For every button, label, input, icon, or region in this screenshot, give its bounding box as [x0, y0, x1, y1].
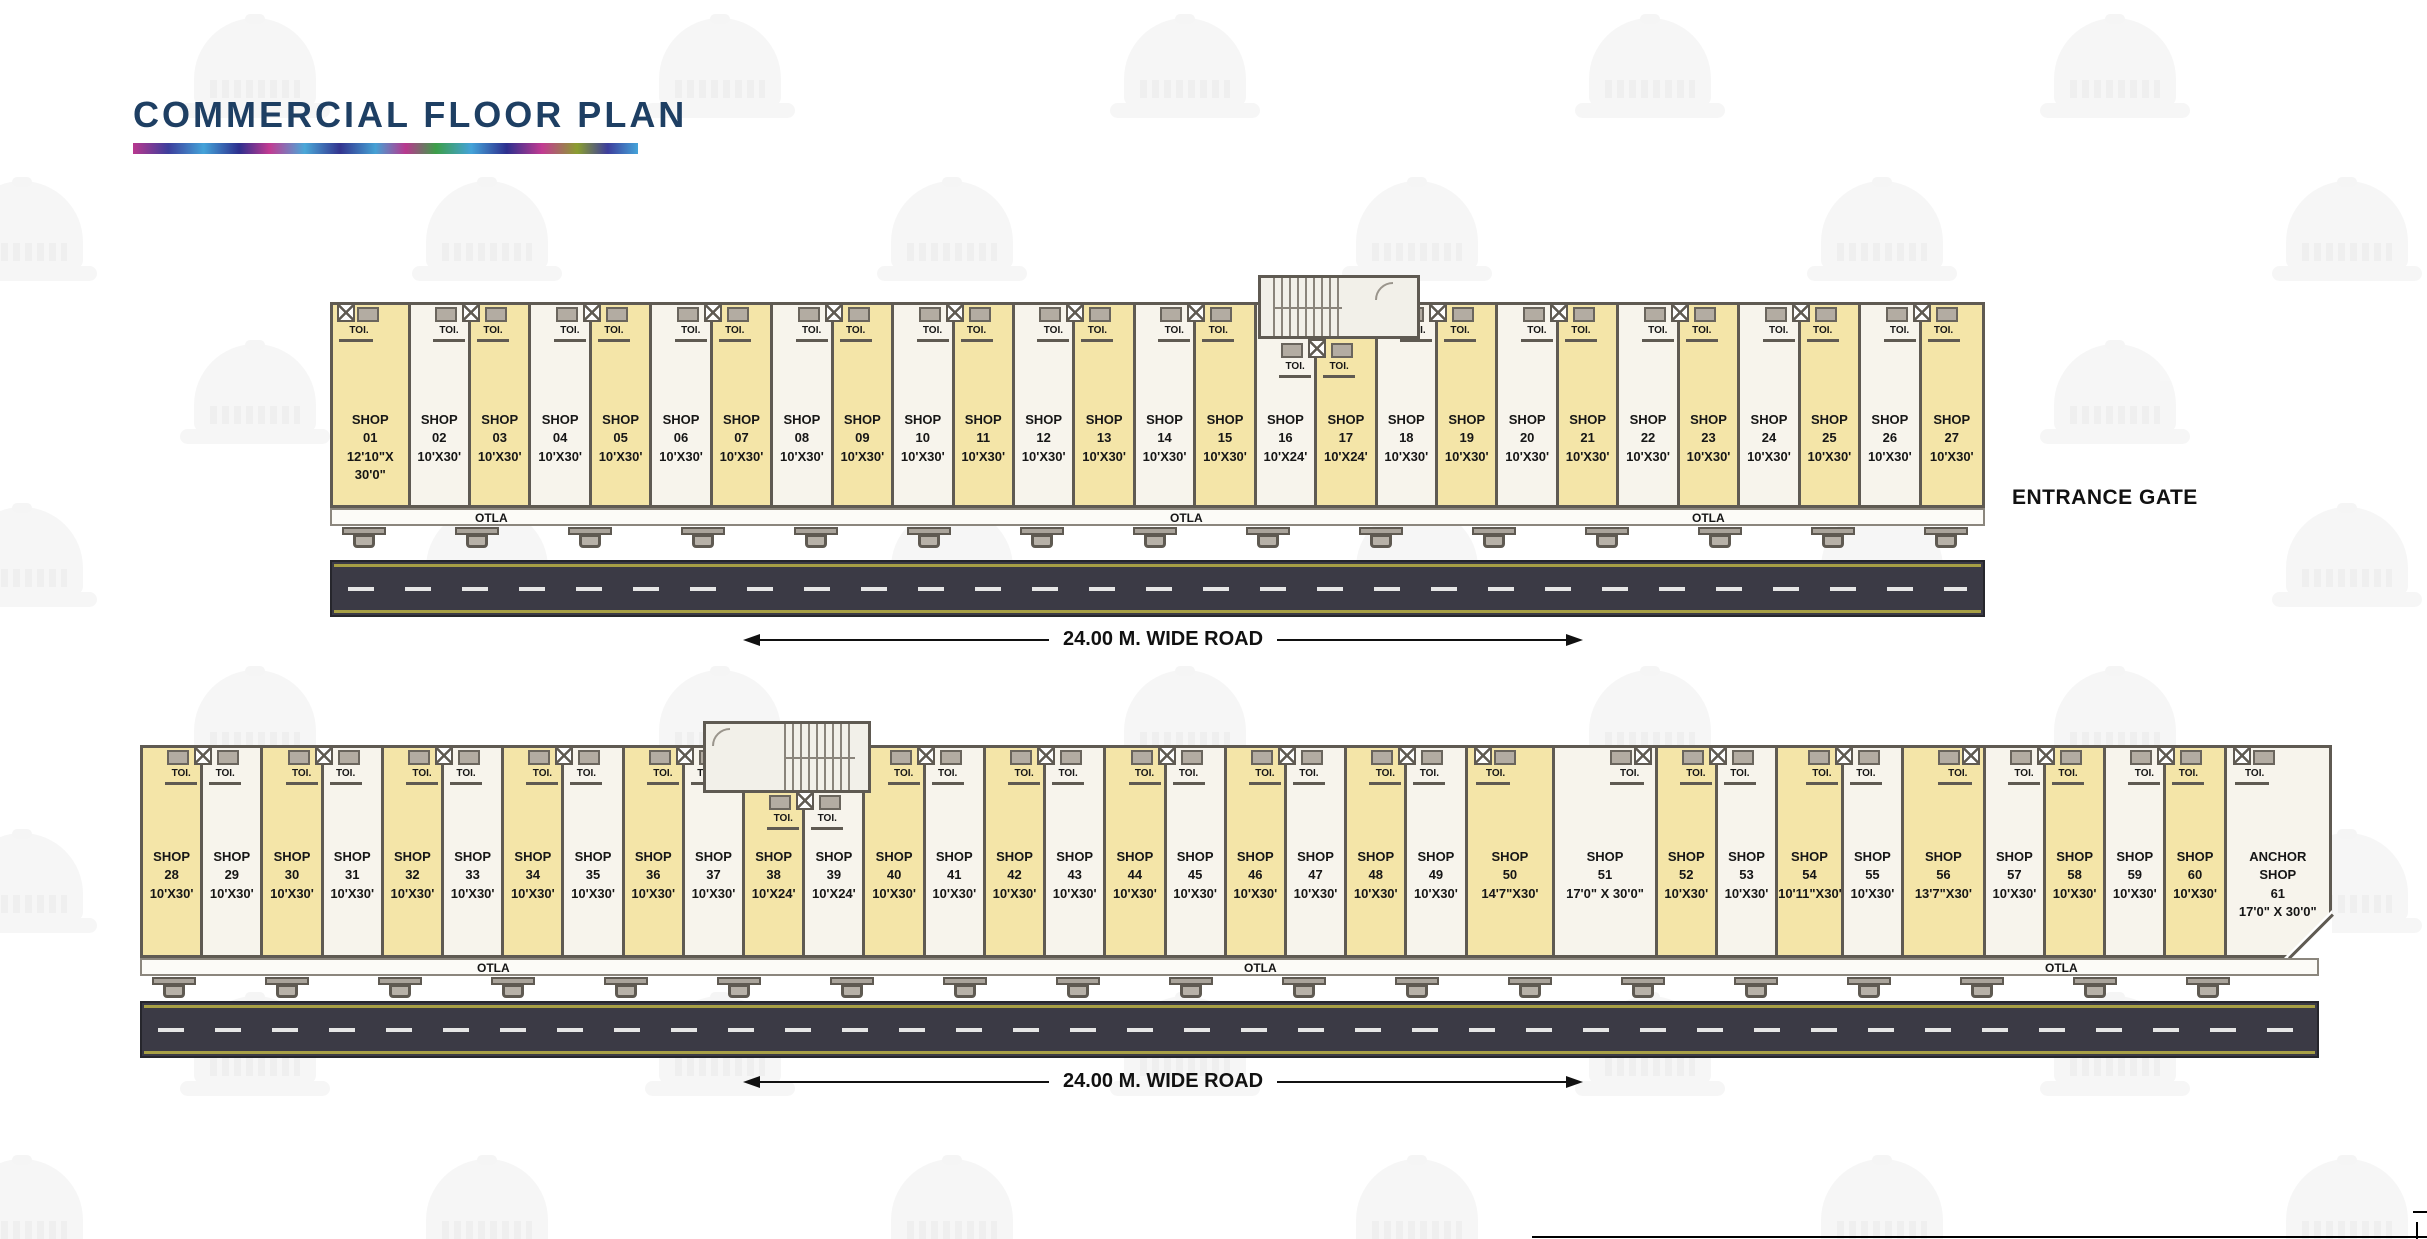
- toilet-wall-stub: [1763, 339, 1795, 342]
- toilet-shaft-icon: [1429, 303, 1447, 322]
- toilet-block: [1251, 750, 1273, 765]
- page-title-block: COMMERCIAL FLOOR PLAN: [133, 94, 687, 154]
- shop-label: SHOP4910'X30': [1407, 848, 1464, 903]
- watermark-helmet: [2272, 503, 2422, 615]
- entry-step: [1246, 527, 1290, 551]
- shop-label: SHOP5710'X30': [1986, 848, 2043, 903]
- helmet-knob: [12, 177, 32, 187]
- watermark-helmet: [877, 1155, 1027, 1239]
- toilet-shaft-icon: [917, 746, 935, 765]
- shop-label-line: 10'X30': [625, 885, 682, 903]
- toilet-wall-stub: [932, 782, 964, 785]
- toilet-single: TOI.: [335, 305, 383, 345]
- entry-step: [1133, 527, 1177, 551]
- watermark-helmet: [1342, 1155, 1492, 1239]
- watermark-helmet: [412, 1155, 562, 1239]
- helmet-knob: [942, 1155, 962, 1165]
- scan-artifact: [2413, 1211, 2427, 1213]
- toilet-label: TOI.: [566, 768, 606, 779]
- toilet-block: [2130, 750, 2152, 765]
- road-width-text: 24.00 M. WIDE ROAD: [1049, 628, 1277, 651]
- shop-label: SHOP0610'X30': [652, 411, 709, 466]
- shop-label-line: 08: [773, 429, 830, 447]
- road-width-label-top: 24.00 M. WIDE ROAD: [743, 628, 1583, 651]
- toilet-wall-stub: [2008, 782, 2040, 785]
- toilet-block: [1938, 750, 1960, 765]
- shop-label: SHOP1910'X30': [1438, 411, 1495, 466]
- shop-label-line: SHOP: [926, 848, 983, 866]
- shop-label: SHOP0510'X30': [592, 411, 649, 466]
- dimension-arrowhead-right: [1566, 1076, 1583, 1088]
- toilet-wall-stub: [840, 339, 872, 342]
- shop-label-line: SHOP: [1136, 411, 1193, 429]
- shop-label-line: 27: [1922, 429, 1982, 447]
- toilet-label: TOI.: [402, 768, 442, 779]
- shop-label-line: SHOP: [1468, 848, 1553, 866]
- shop-label: SHOP5014'7"X30': [1468, 848, 1553, 903]
- entry-step: [1585, 527, 1629, 551]
- shop-label-line: SHOP: [384, 848, 441, 866]
- otla-label: OTLA: [1244, 961, 1277, 975]
- entry-step: [2073, 977, 2117, 1001]
- shop-label-line: 10'X30': [1136, 448, 1193, 466]
- toilet-block: [167, 750, 189, 765]
- shop-label-line: 13'7"X30': [1904, 885, 1983, 903]
- shop-label-line: 50: [1468, 866, 1553, 884]
- shop-label-line: SHOP: [1986, 848, 2043, 866]
- helmet-skyline: [210, 406, 300, 424]
- toilet-block: [649, 750, 671, 765]
- shop-label-line: 10'X24': [805, 885, 862, 903]
- helmet-knob: [245, 340, 265, 350]
- toilet-block: [1523, 307, 1545, 322]
- shop-label-line: 10'X30': [1167, 885, 1224, 903]
- helmet-knob: [2337, 503, 2357, 513]
- watermark-helmet: [0, 503, 97, 615]
- shop-label-line: 10'X30': [1015, 448, 1072, 466]
- stair-landing-line: [1273, 307, 1342, 309]
- toilet-label: TOI.: [671, 325, 711, 336]
- toilet-wall-stub: [2052, 782, 2084, 785]
- shop-label-line: SHOP: [1801, 411, 1858, 429]
- entry-step: [943, 977, 987, 1001]
- door-swing-arc: [1375, 282, 1411, 318]
- chamfer-corner-cover: [2284, 910, 2332, 958]
- shop-label-line: 10'X30': [926, 885, 983, 903]
- shop-label-line: 40: [865, 866, 922, 884]
- entry-step-foot: [841, 984, 863, 998]
- toilet-block: [969, 307, 991, 322]
- helmet-knob: [477, 1155, 497, 1165]
- watermark-helmet: [2040, 14, 2190, 126]
- toilet-block: [1131, 750, 1153, 765]
- helmet-skyline: [1605, 1058, 1695, 1076]
- shop-label-line: 26: [1861, 429, 1918, 447]
- toilet-wall-stub: [1279, 375, 1311, 378]
- toilet-wall-stub: [767, 827, 799, 830]
- toilet-pair: TOI.TOI.: [1243, 748, 1331, 788]
- shop-label-line: 21: [1559, 429, 1616, 447]
- toilet-pair: TOI.TOI.: [2002, 748, 2090, 788]
- shop-label-line: 10'X30': [1658, 885, 1715, 903]
- entry-step: [265, 977, 309, 1001]
- helmet-brim: [1807, 266, 1957, 281]
- watermark-helmet: [0, 1155, 97, 1239]
- shop-label-line: 41: [926, 866, 983, 884]
- shop-label-line: SHOP: [2046, 848, 2103, 866]
- helmet-knob: [2105, 14, 2125, 24]
- toilet-wall-stub: [1476, 782, 1510, 785]
- shop-label: SHOP2010'X30': [1498, 411, 1555, 466]
- shop-label-line: 10'X30': [531, 448, 588, 466]
- watermark-helmet: [877, 177, 1027, 289]
- toilet-block: [1808, 750, 1830, 765]
- toilet-shaft-icon: [1037, 746, 1055, 765]
- shop-label-line: 44: [1106, 866, 1163, 884]
- staircase: [1258, 275, 1420, 339]
- toilet-label: TOI.: [2235, 768, 2275, 779]
- shop-label: SHOP5310'X30': [1718, 848, 1775, 903]
- toilet-block: [1421, 750, 1443, 765]
- helmet-skyline: [0, 243, 67, 261]
- toilet-block: [1682, 750, 1704, 765]
- shop-label-line: 10'X30': [2166, 885, 2223, 903]
- shop-label: SHOP1710'X24': [1317, 411, 1374, 466]
- toilet-shaft-icon: [1158, 746, 1176, 765]
- toilet-wall-stub: [1884, 339, 1916, 342]
- toilet-block: [1815, 307, 1837, 322]
- watermark-helmet: [2272, 177, 2422, 289]
- toilet-wall-stub: [811, 827, 843, 830]
- shop-label-line: 14'7"X30': [1468, 885, 1553, 903]
- toilet-block: [1160, 307, 1182, 322]
- shop-label-line: SHOP: [1680, 411, 1737, 429]
- shop-label: SHOP4410'X30': [1106, 848, 1163, 903]
- helmet-knob: [2337, 829, 2357, 839]
- helmet-skyline: [0, 895, 67, 913]
- toilet-label: TOI.: [473, 325, 513, 336]
- shop-label: SHOP3410'X30': [504, 848, 561, 903]
- toilet-wall-stub: [1806, 782, 1838, 785]
- helmet-brim: [2272, 592, 2422, 607]
- entry-step-foot: [615, 984, 637, 998]
- toilet-label: TOI.: [957, 325, 997, 336]
- watermark-helmet: [1807, 177, 1957, 289]
- shop-label-line: 60: [2166, 866, 2223, 884]
- toilet-block: [769, 795, 791, 810]
- toilet-shaft-icon: [704, 303, 722, 322]
- toilet-wall-stub: [286, 782, 318, 785]
- shop-label-line: 45: [1167, 866, 1224, 884]
- toilet-wall-stub: [1938, 782, 1972, 785]
- toilet-label: TOI.: [1803, 325, 1843, 336]
- road-top: [330, 560, 1985, 617]
- entry-step: [378, 977, 422, 1001]
- toilet-single: TOI.: [1606, 748, 1654, 788]
- entry-step-foot: [805, 534, 827, 548]
- toilet-wall-stub: [796, 339, 828, 342]
- toilet-block: [1494, 750, 1516, 765]
- shop-label-line: SHOP: [1922, 411, 1982, 429]
- toilet-shaft-icon: [2157, 746, 2175, 765]
- shop-label-line: 10'X30': [411, 448, 468, 466]
- shop-label-line: SHOP: [1555, 848, 1654, 866]
- shop-label-line: SHOP: [1287, 848, 1344, 866]
- helmet-skyline: [2070, 406, 2160, 424]
- toilet-block: [1281, 343, 1303, 358]
- helmet-skyline: [2070, 80, 2160, 98]
- entrance-gate-label: ENTRANCE GATE: [2012, 486, 2198, 510]
- helmet-brim: [180, 429, 330, 444]
- toilet-label: TOI.: [1245, 768, 1285, 779]
- toilet-wall-stub: [1129, 782, 1161, 785]
- helmet-brim: [0, 918, 97, 933]
- shop-label-line: 02: [411, 429, 468, 447]
- shop-label-line: 10'X30': [592, 448, 649, 466]
- toilet-pair: TOI.TOI.: [520, 748, 608, 788]
- toilet-shaft-icon: [1835, 746, 1853, 765]
- entry-step-foot: [692, 534, 714, 548]
- helmet-knob: [245, 666, 265, 676]
- toilet-wall-stub: [1202, 339, 1234, 342]
- entry-step: [342, 527, 386, 551]
- toilet-shaft-icon: [2037, 746, 2055, 765]
- entry-step-foot: [1067, 984, 1089, 998]
- toilet-wall-stub: [1158, 339, 1190, 342]
- toilet-wall-stub: [1323, 375, 1355, 378]
- toilet-wall-stub: [433, 339, 465, 342]
- shop-label: SHOP4610'X30': [1227, 848, 1284, 903]
- toilet-block: [798, 307, 820, 322]
- shop-label-line: 24: [1740, 429, 1797, 447]
- otla-label: OTLA: [475, 511, 508, 525]
- road-edge-line: [334, 610, 1981, 613]
- entry-step-foot: [466, 534, 488, 548]
- toilet-wall-stub: [1850, 782, 1882, 785]
- shop-label-line: SHOP: [1498, 411, 1555, 429]
- toilet-block: [1181, 750, 1203, 765]
- helmet-skyline: [442, 1221, 532, 1239]
- toilet-shaft-icon: [435, 746, 453, 765]
- toilet-block: [217, 750, 239, 765]
- shop-label-line: SHOP: [1075, 411, 1132, 429]
- helmet-brim: [877, 266, 1027, 281]
- shop-label-line: 10'X30': [1227, 885, 1284, 903]
- entry-step-foot: [1180, 984, 1202, 998]
- entry-step-foot: [1858, 984, 1880, 998]
- helmet-knob: [710, 14, 730, 24]
- shop-label: SHOP5810'X30': [2046, 848, 2103, 903]
- shop-label-line: 12'10"X: [333, 448, 408, 466]
- toilet-label: TOI.: [792, 325, 832, 336]
- shop-label: SHOP4310'X30': [1046, 848, 1103, 903]
- shop-label-line: SHOP: [955, 411, 1012, 429]
- toilet-label: TOI.: [2168, 768, 2208, 779]
- helmet-knob: [1407, 177, 1427, 187]
- stair-landing-line: [784, 757, 855, 759]
- toilet-block: [2060, 750, 2082, 765]
- shop-label: SHOP5210'X30': [1658, 848, 1715, 903]
- shop-label-line: 10'X24': [1317, 448, 1374, 466]
- toilet-block: [1936, 307, 1958, 322]
- toilet-label: TOI.: [1154, 325, 1194, 336]
- shop-label-line: 10'X30': [1106, 885, 1163, 903]
- shop-label-line: 53: [1718, 866, 1775, 884]
- toilet-label: TOI.: [1004, 768, 1044, 779]
- top-shops-building: SHOP0112'10"X30'0"TOI.SHOP0210'X30'TOI.T…: [330, 302, 1985, 508]
- entry-step-foot: [1406, 984, 1428, 998]
- toilet-label: TOI.: [339, 325, 379, 336]
- dimension-arrowhead-right: [1566, 634, 1583, 646]
- toilet-wall-stub: [165, 782, 197, 785]
- entry-step-foot: [163, 984, 185, 998]
- toilet-block: [528, 750, 550, 765]
- shop-label-line: SHOP: [1196, 411, 1253, 429]
- shop-label-line: 13: [1075, 429, 1132, 447]
- road-edge-line: [144, 1005, 2315, 1008]
- entry-step: [1395, 977, 1439, 1001]
- shop-label-line: 10'X30': [894, 448, 951, 466]
- entry-step-foot: [1031, 534, 1053, 548]
- entry-step: [1056, 977, 1100, 1001]
- shop-label-line: SHOP: [1317, 411, 1374, 429]
- otla-label: OTLA: [1170, 511, 1203, 525]
- shop-label-line: 10'X30': [1196, 448, 1253, 466]
- toilet-shaft-icon: [1187, 303, 1205, 322]
- toilet-pair: TOI.TOI.: [1636, 305, 1724, 345]
- toilet-shaft-icon: [1709, 746, 1727, 765]
- shop-label-line: SHOP: [986, 848, 1043, 866]
- shop-label: SHOP0310'X30': [471, 411, 528, 466]
- toilet-wall-stub: [961, 339, 993, 342]
- shop-label-line: 10'X30': [1498, 448, 1555, 466]
- shop-label: SHOP0112'10"X30'0": [333, 411, 408, 485]
- toilet-block: [1331, 343, 1353, 358]
- toilet-shaft-icon: [796, 791, 814, 810]
- shop-label-line: 10'X30': [1680, 448, 1737, 466]
- helmet-brim: [1575, 103, 1725, 118]
- toilet-label: TOI.: [913, 325, 953, 336]
- page-title: COMMERCIAL FLOOR PLAN: [133, 94, 687, 136]
- toilet-wall-stub: [2172, 782, 2204, 785]
- toilet-wall-stub: [1052, 782, 1084, 785]
- entry-step-foot: [954, 984, 976, 998]
- toilet-pair: TOI.TOI.: [280, 748, 368, 788]
- helmet-skyline: [907, 1221, 997, 1239]
- shop-label-line: 35: [564, 866, 621, 884]
- shop-label: SHOP3110'X30': [324, 848, 381, 903]
- entry-step: [604, 977, 648, 1001]
- shop-label-line: 10'X24': [1257, 448, 1314, 466]
- shop-label-line: 10'X30': [773, 448, 830, 466]
- shop-label: SHOP0710'X30': [713, 411, 770, 466]
- shop-label-line: SHOP: [1844, 848, 1901, 866]
- toilet-wall-stub: [1369, 782, 1401, 785]
- shop-label-line: SHOP: [1778, 848, 1841, 866]
- toilet-label: TOI.: [1365, 768, 1405, 779]
- shop-label-line: 10'X30': [955, 448, 1012, 466]
- toilet-pair: TOI.TOI.: [548, 305, 636, 345]
- toilet-block: [890, 750, 912, 765]
- entry-step-foot: [502, 984, 524, 998]
- toilet-shaft-icon: [825, 303, 843, 322]
- shop-label: SHOP4110'X30': [926, 848, 983, 903]
- toilet-wall-stub: [647, 782, 679, 785]
- toilet-block: [606, 307, 628, 322]
- shop-label-line: 10'X30': [2106, 885, 2163, 903]
- toilet-block: [1886, 307, 1908, 322]
- entry-step: [1734, 977, 1778, 1001]
- shop-label-line: 01: [333, 429, 408, 447]
- shop-label-line: 61: [2227, 885, 2329, 903]
- shop-label-line: 37: [685, 866, 742, 884]
- shop-label: SHOP4210'X30': [986, 848, 1043, 903]
- toilet-block: [1858, 750, 1880, 765]
- toilet-wall-stub: [1081, 339, 1113, 342]
- entry-step-foot: [1935, 534, 1957, 548]
- shop-label-line: SHOP: [773, 411, 830, 429]
- entry-step-foot: [1822, 534, 1844, 548]
- shop-label-line: 10'X30': [834, 448, 891, 466]
- shop-label-line: 10'X30': [203, 885, 260, 903]
- watermark-helmet: [180, 340, 330, 452]
- shop-label: SHOP3810'X24': [745, 848, 802, 903]
- shop-label-line: 48: [1347, 866, 1404, 884]
- toilet-block: [338, 750, 360, 765]
- toilet-label: TOI.: [1125, 768, 1165, 779]
- shop-label-line: 30: [263, 866, 320, 884]
- shop-label-line: 42: [986, 866, 1043, 884]
- road-width-label-bottom: 24.00 M. WIDE ROAD: [743, 1070, 1583, 1093]
- toilet-wall-stub: [570, 782, 602, 785]
- helmet-knob: [2105, 340, 2125, 350]
- entry-step: [1508, 977, 1552, 1001]
- shop-label-line: SHOP: [504, 848, 561, 866]
- toilet-block: [677, 307, 699, 322]
- helmet-skyline: [675, 80, 765, 98]
- entry-step: [717, 977, 761, 1001]
- shop-label-line: 07: [713, 429, 770, 447]
- toilet-block: [1732, 750, 1754, 765]
- shop-label-line: SHOP: [263, 848, 320, 866]
- helmet-knob: [12, 829, 32, 839]
- entry-step: [907, 527, 951, 551]
- toilet-shaft-icon: [1792, 303, 1810, 322]
- toilet-block: [1371, 750, 1393, 765]
- toilet-block: [940, 750, 962, 765]
- watermark-helmet: [2040, 340, 2190, 452]
- shop-label: SHOP3510'X30': [564, 848, 621, 903]
- shop-label-line: 10'X30': [564, 885, 621, 903]
- toilet-shaft-icon: [2233, 746, 2251, 765]
- toilet-wall-stub: [2235, 782, 2269, 785]
- toilet-label: TOI.: [1759, 325, 1799, 336]
- toilet-wall-stub: [1173, 782, 1205, 785]
- toilet-label: TOI.: [836, 325, 876, 336]
- toilet-wall-stub: [1724, 782, 1756, 785]
- shop-label: SHOP4010'X30': [865, 848, 922, 903]
- shop-label-line: 10'X30': [685, 885, 742, 903]
- toilet-wall-stub: [1444, 339, 1476, 342]
- entry-step: [1020, 527, 1064, 551]
- shop-label-line: 10'X30': [1619, 448, 1676, 466]
- toilet-shaft-icon: [1474, 746, 1492, 765]
- helmet-skyline: [1837, 243, 1927, 261]
- toilet-block: [458, 750, 480, 765]
- entry-step: [1960, 977, 2004, 1001]
- shop-label: SHOP2210'X30': [1619, 411, 1676, 466]
- shop-label-line: 10'X30': [1718, 885, 1775, 903]
